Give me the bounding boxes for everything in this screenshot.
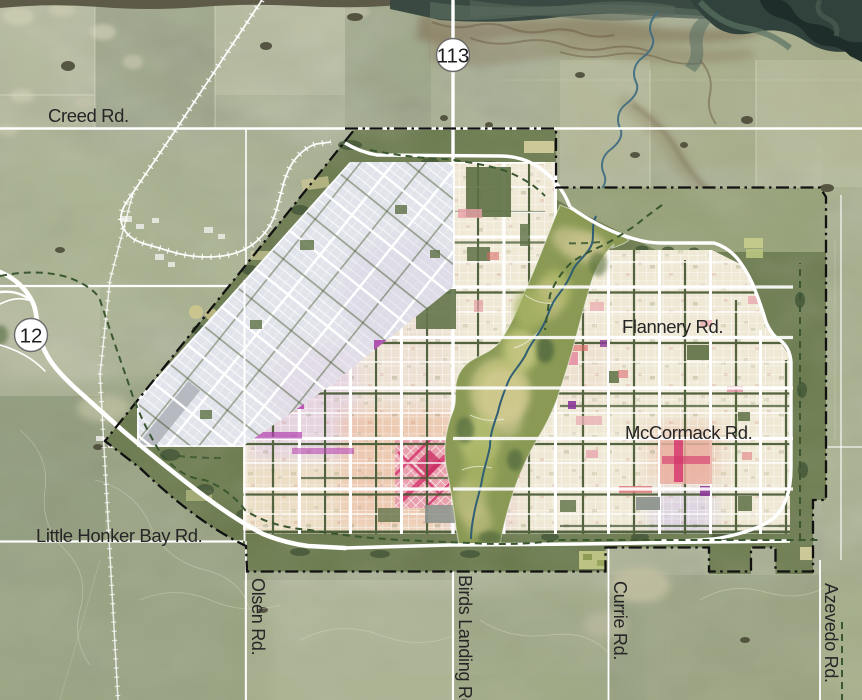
svg-text:Currie Rd.: Currie Rd. bbox=[610, 581, 630, 660]
svg-text:113: 113 bbox=[437, 45, 470, 68]
svg-text:Azevedo Rd.: Azevedo Rd. bbox=[821, 583, 841, 683]
svg-text:Little Honker Bay Rd.: Little Honker Bay Rd. bbox=[36, 525, 202, 546]
svg-text:Olsen Rd.: Olsen Rd. bbox=[248, 578, 268, 655]
svg-text:Creed Rd.: Creed Rd. bbox=[48, 105, 129, 126]
svg-text:McCormack Rd.: McCormack Rd. bbox=[625, 422, 752, 443]
svg-text:Flannery Rd.: Flannery Rd. bbox=[622, 316, 723, 337]
svg-text:12: 12 bbox=[20, 325, 43, 348]
svg-text:Birds Landing Rd.: Birds Landing Rd. bbox=[455, 575, 475, 700]
